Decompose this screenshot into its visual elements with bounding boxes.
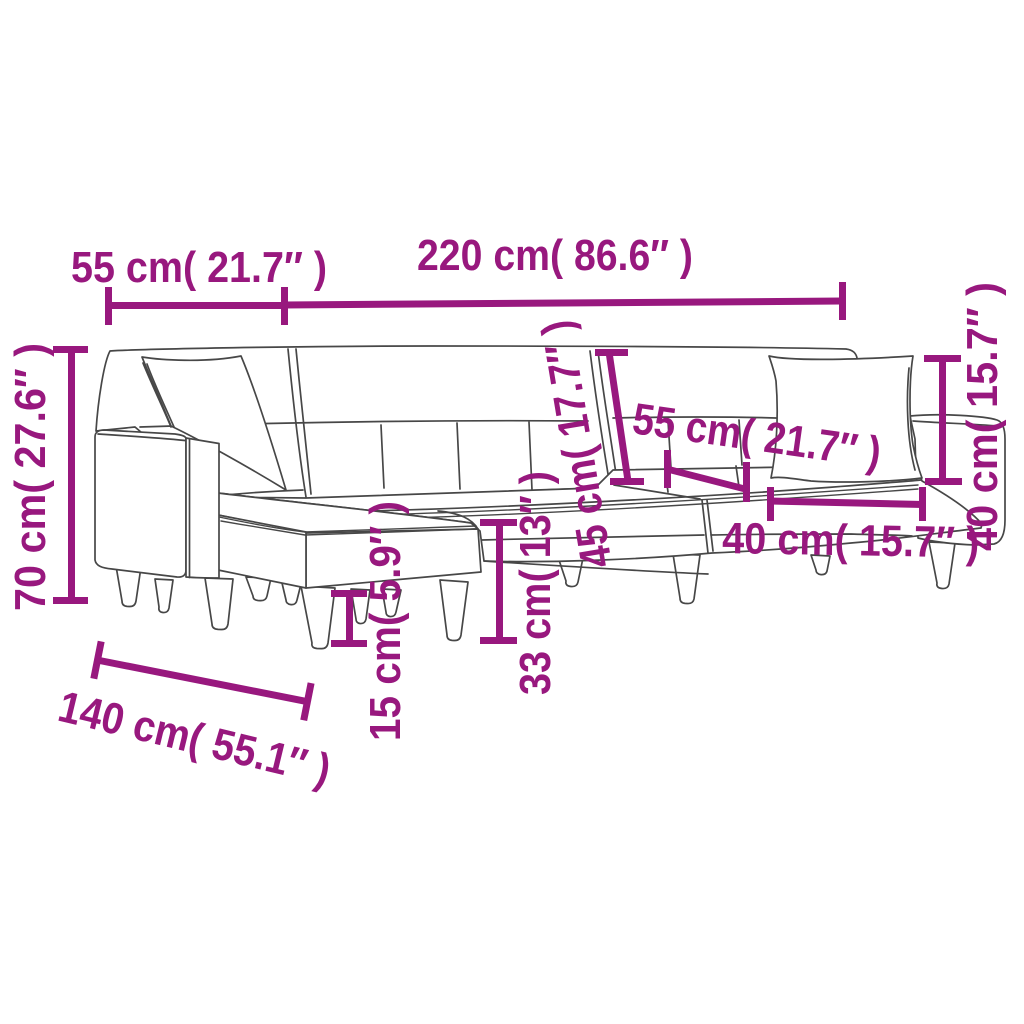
svg-text:70 cm( 27.6″ ): 70 cm( 27.6″ ) <box>6 343 55 611</box>
svg-text:40 cm( 15.7″ ): 40 cm( 15.7″ ) <box>722 514 980 567</box>
svg-text:15 cm( 5.9″ ): 15 cm( 5.9″ ) <box>361 501 410 741</box>
svg-text:33 cm( 13″ ): 33 cm( 13″ ) <box>511 471 560 695</box>
svg-text:220 cm( 86.6″ ): 220 cm( 86.6″ ) <box>417 231 693 280</box>
svg-text:55 cm( 21.7″ ): 55 cm( 21.7″ ) <box>71 243 327 292</box>
svg-text:40 cm( 15.7″ ): 40 cm( 15.7″ ) <box>958 282 1007 551</box>
